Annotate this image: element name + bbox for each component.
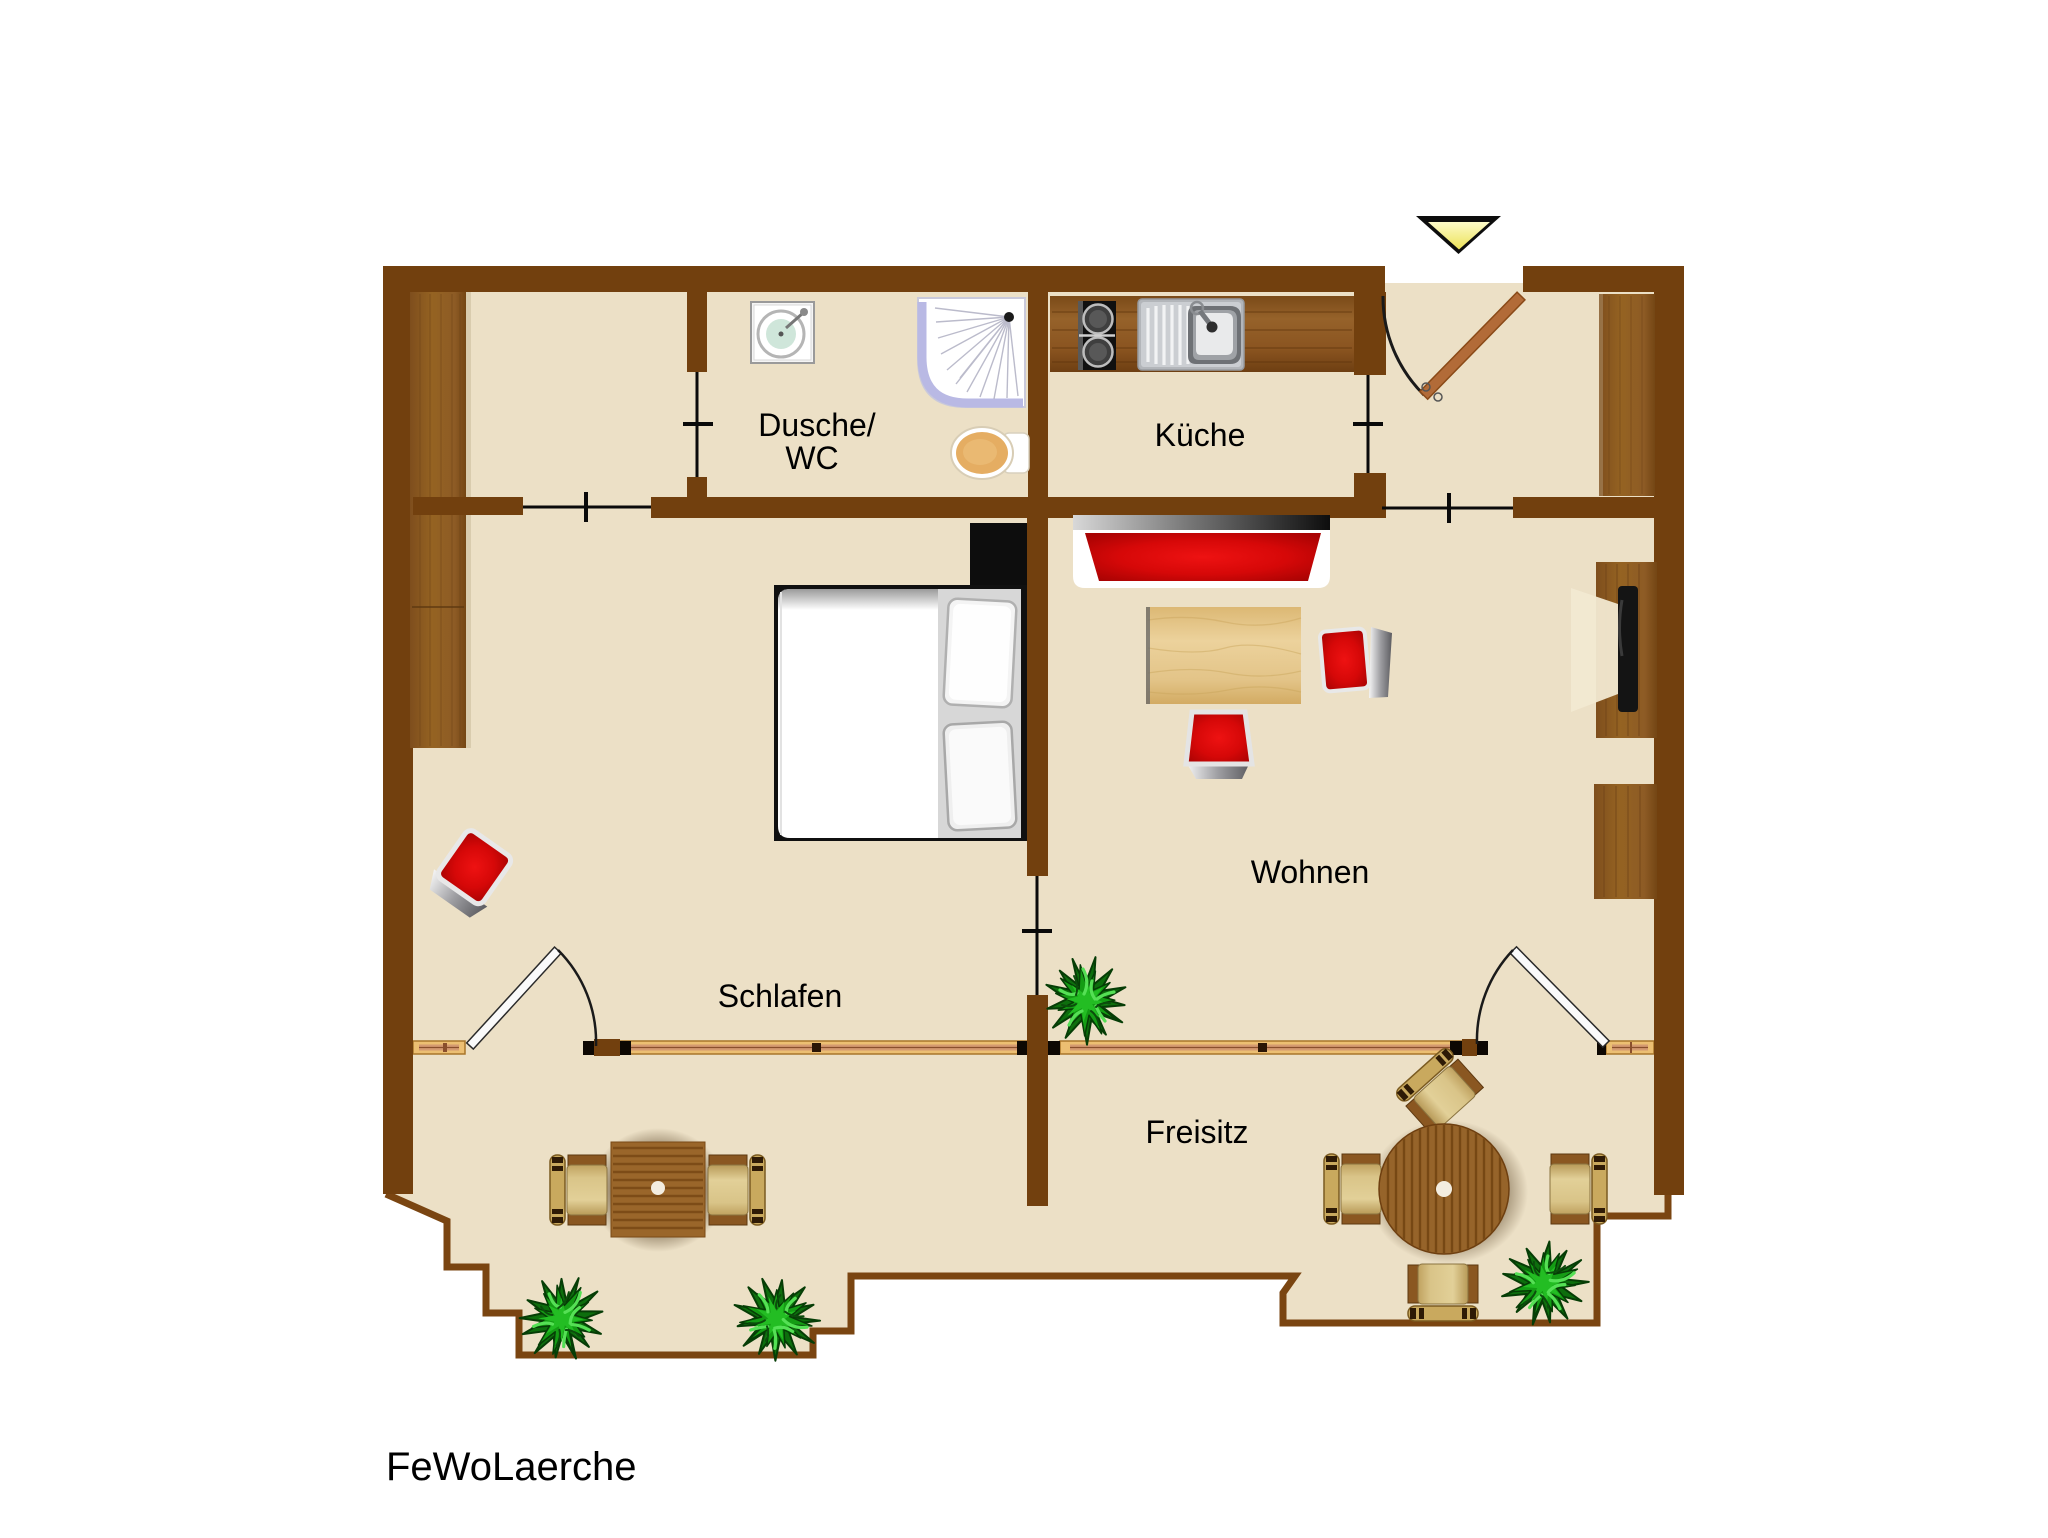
svg-text:FeWoLaerche: FeWoLaerche: [386, 1445, 637, 1489]
svg-text:Küche: Küche: [1155, 417, 1246, 453]
svg-text:WC: WC: [785, 440, 838, 476]
svg-text:Dusche/: Dusche/: [758, 407, 876, 443]
svg-text:Schlafen: Schlafen: [718, 978, 843, 1014]
svg-text:Wohnen: Wohnen: [1251, 854, 1370, 890]
svg-text:Freisitz: Freisitz: [1145, 1114, 1248, 1150]
